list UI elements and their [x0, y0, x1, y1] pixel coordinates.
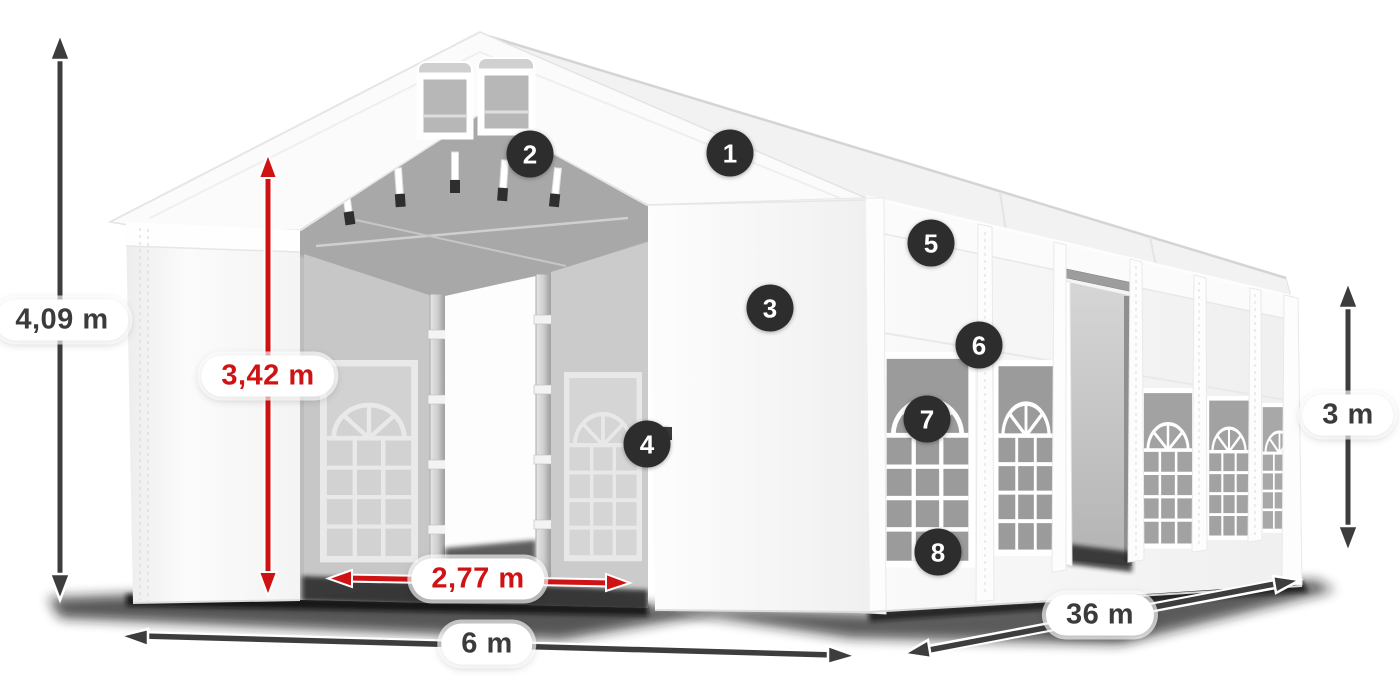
side-entrance	[1057, 268, 1138, 572]
hotspot-5[interactable]: 5	[908, 220, 955, 267]
hotspot-8[interactable]: 8	[915, 529, 962, 576]
hotspot-7[interactable]: 7	[904, 396, 951, 443]
total-height-label: 4,09 m	[0, 300, 129, 341]
side-length-label: 36 m	[1046, 595, 1154, 636]
entrance-height-label: 3,42 m	[201, 356, 334, 397]
hotspot-4[interactable]: 4	[624, 421, 671, 468]
front-width-label: 6 m	[441, 624, 532, 665]
entrance-width-label: 2,77 m	[411, 559, 544, 600]
hotspot-6[interactable]: 6	[956, 322, 1003, 369]
hotspot-1[interactable]: 1	[707, 130, 754, 177]
front-left-panel	[126, 222, 300, 603]
front-right-panel	[628, 198, 870, 612]
hotspot-3[interactable]: 3	[747, 285, 794, 332]
tent-dimension-diagram: 4,09 m 3,42 m 2,77 m 6 m 36 m 3 m 1 2 3 …	[0, 0, 1400, 700]
side-height-label: 3 m	[1302, 395, 1393, 436]
tent-illustration	[0, 0, 1400, 700]
hotspot-2[interactable]: 2	[507, 131, 554, 178]
